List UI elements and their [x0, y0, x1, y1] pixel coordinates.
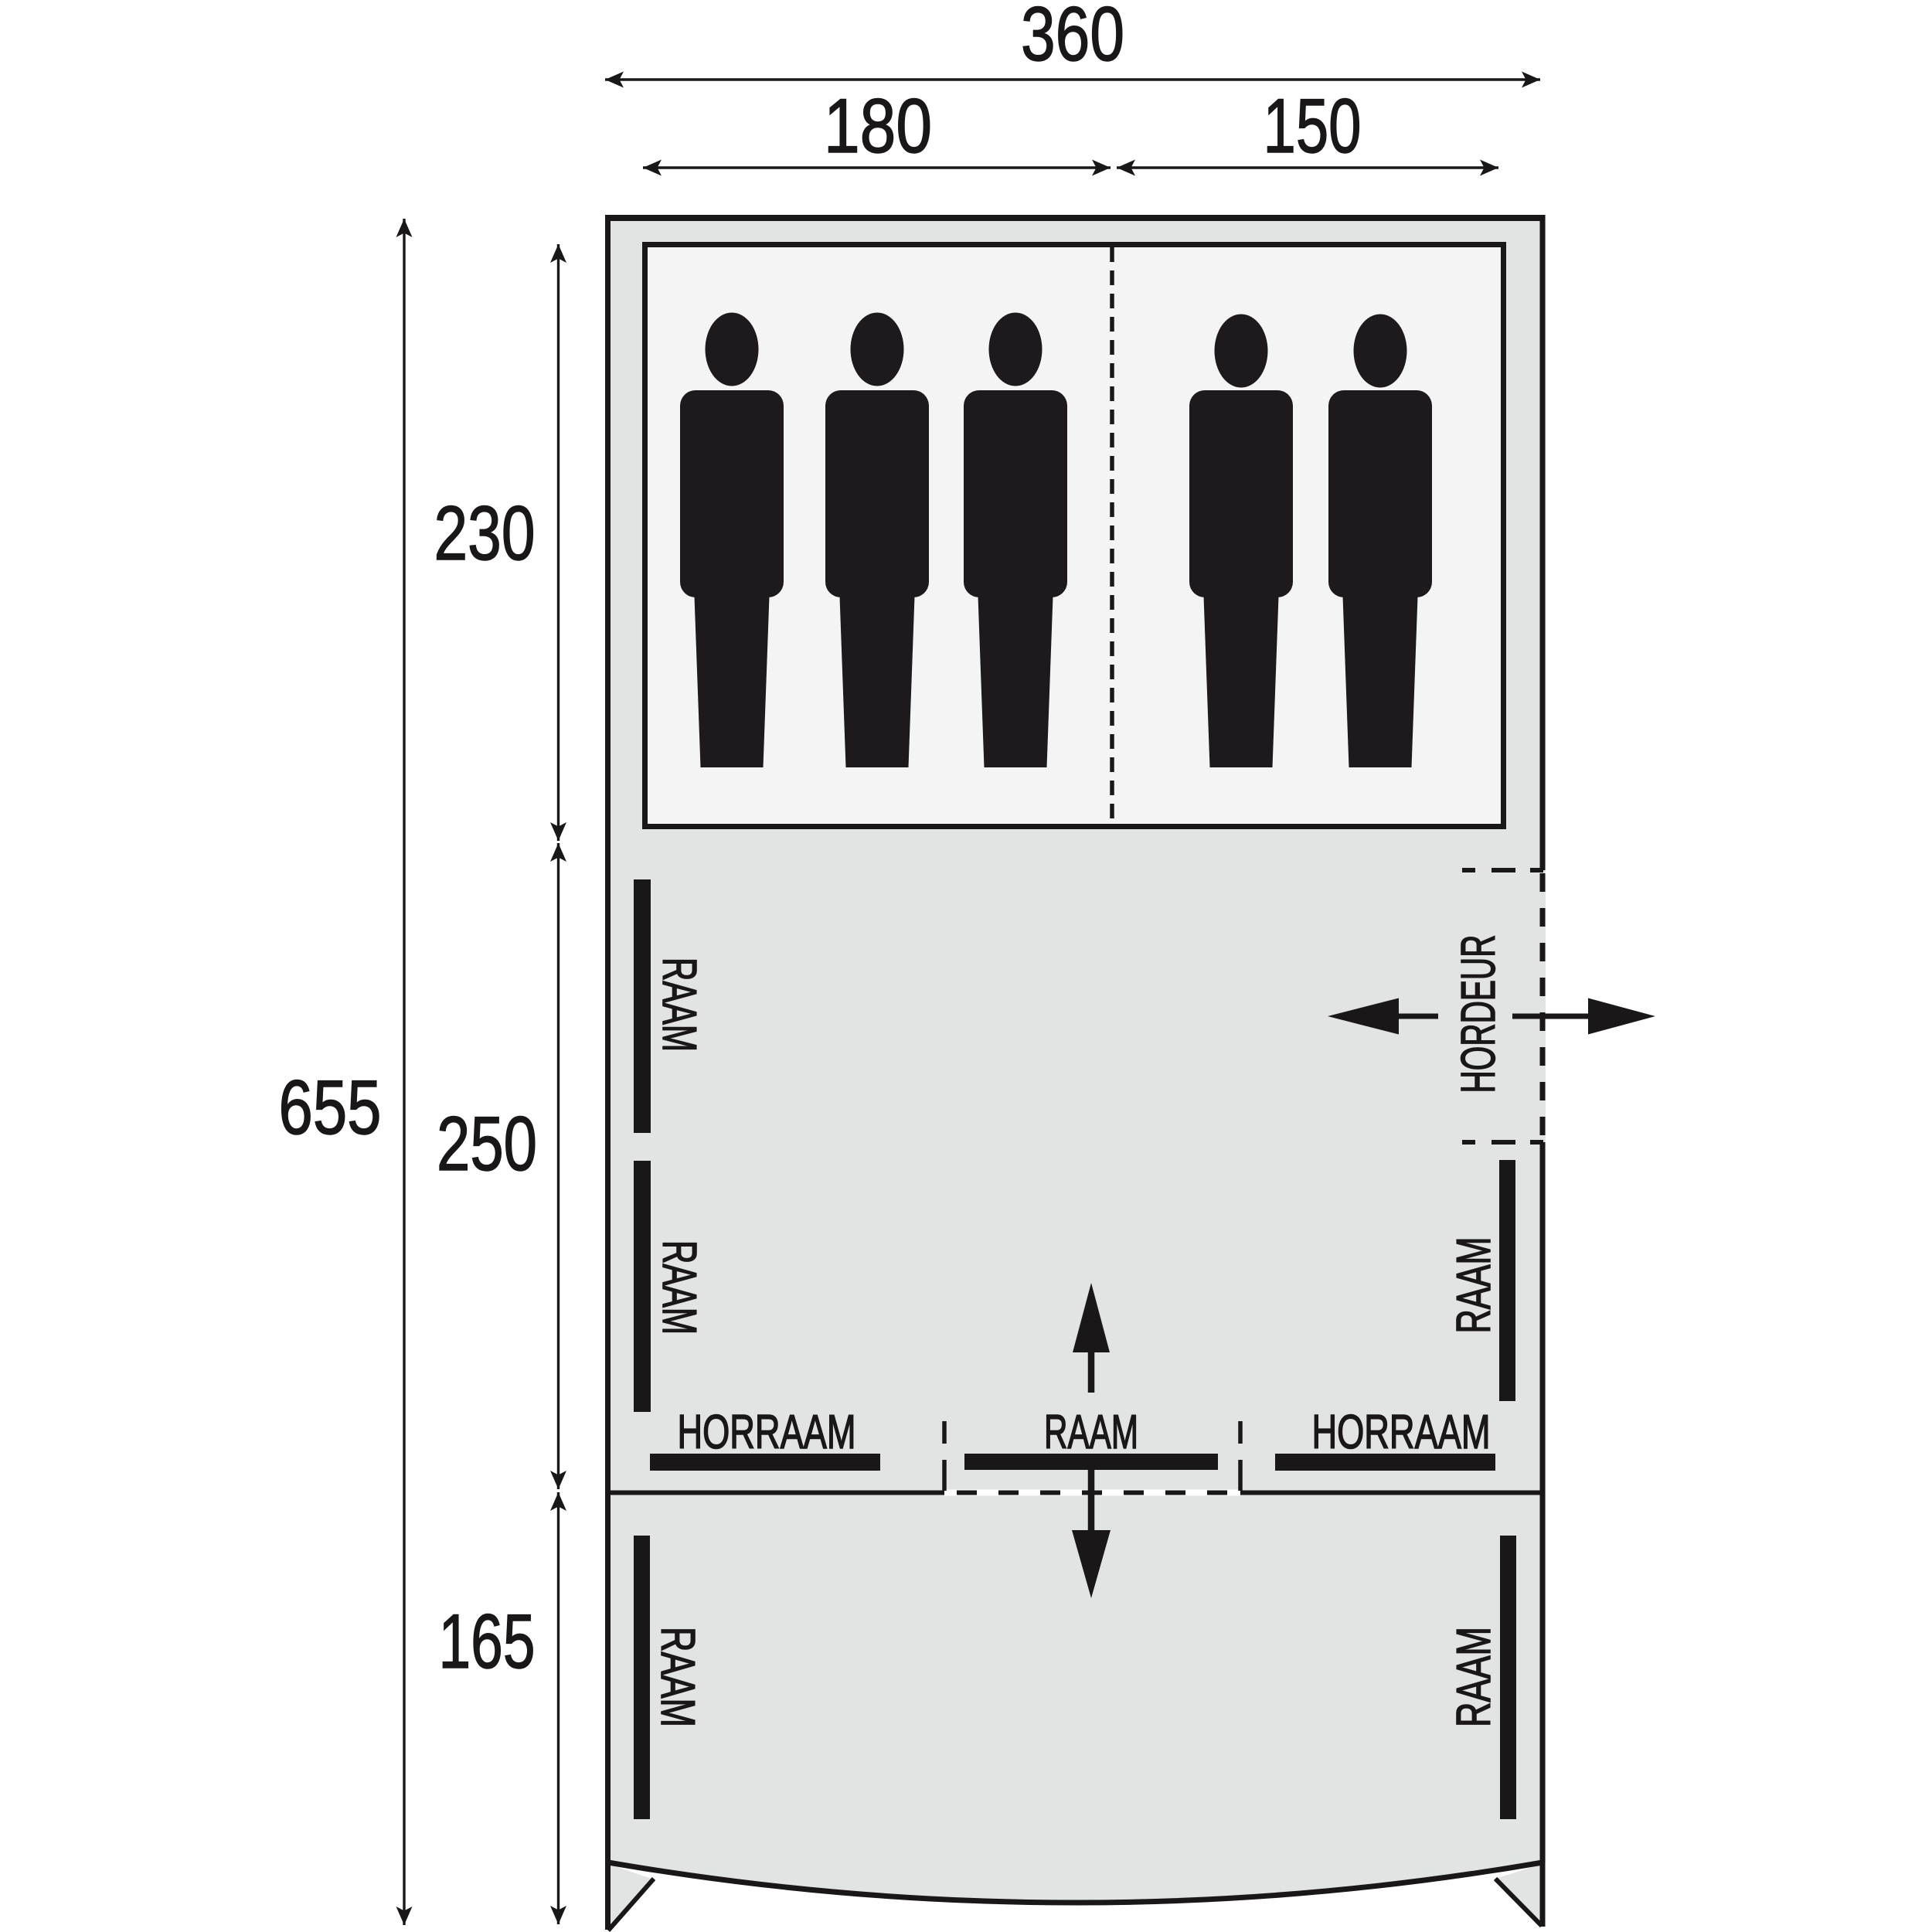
svg-text:RAAM: RAAM — [1044, 1406, 1138, 1459]
svg-text:655: 655 — [279, 1064, 382, 1150]
svg-text:230: 230 — [434, 490, 536, 576]
svg-text:HORRAAM: HORRAAM — [1312, 1406, 1491, 1459]
svg-text:250: 250 — [437, 1100, 537, 1186]
svg-text:RAAM: RAAM — [652, 1240, 706, 1335]
svg-text:165: 165 — [439, 1598, 536, 1684]
svg-text:RAAM: RAAM — [652, 957, 706, 1052]
svg-text:RAAM: RAAM — [1447, 1627, 1501, 1727]
svg-text:HORDEUR: HORDEUR — [1452, 935, 1505, 1094]
svg-text:RAAM: RAAM — [1447, 1237, 1501, 1334]
svg-text:180: 180 — [824, 83, 932, 168]
svg-text:150: 150 — [1264, 83, 1362, 168]
svg-text:HORRAAM: HORRAAM — [678, 1406, 856, 1459]
svg-text:RAAM: RAAM — [651, 1627, 704, 1727]
svg-text:360: 360 — [1021, 0, 1124, 77]
